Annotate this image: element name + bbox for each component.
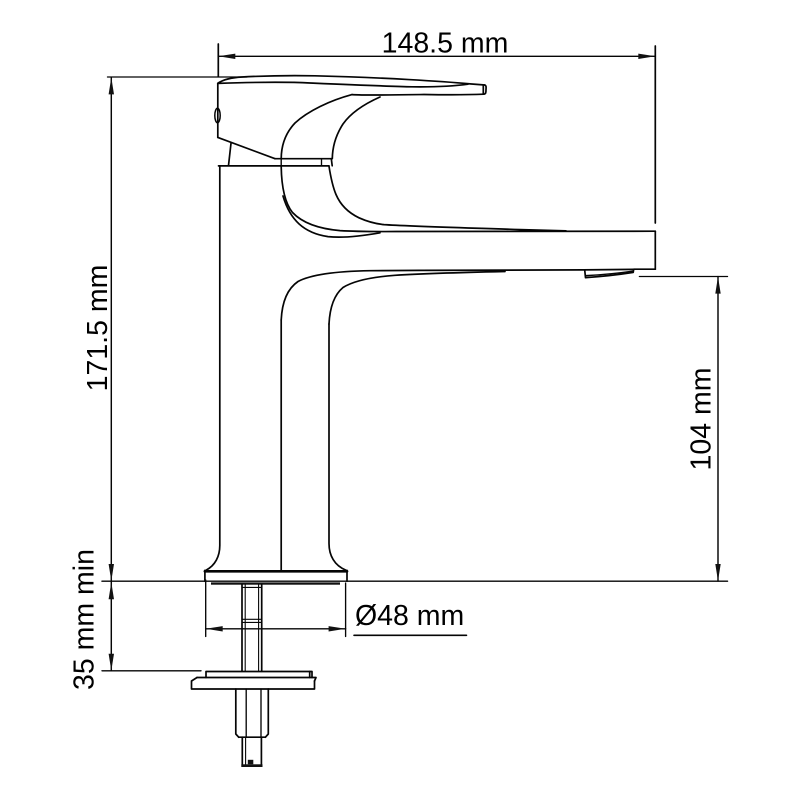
svg-text:104 mm: 104 mm <box>686 368 718 471</box>
svg-text:148.5 mm: 148.5 mm <box>382 28 509 60</box>
svg-text:35 mm min: 35 mm min <box>69 549 101 690</box>
svg-text:171.5 mm: 171.5 mm <box>82 265 114 392</box>
svg-text:Ø48 mm: Ø48 mm <box>355 600 464 632</box>
